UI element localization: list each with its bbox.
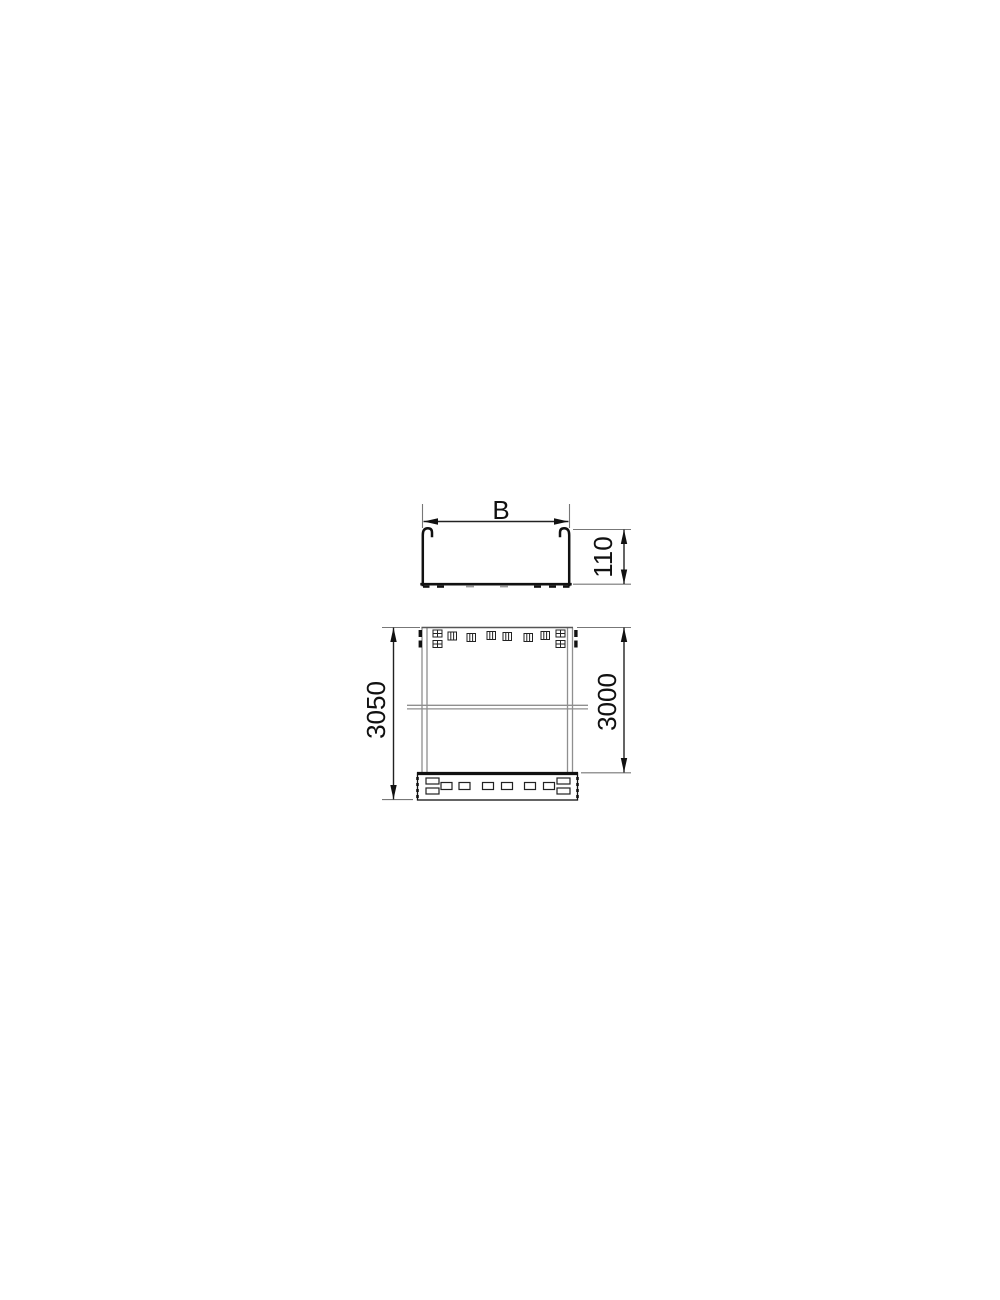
d3050-arrow-bottom bbox=[390, 785, 396, 800]
perforation-stack-right bbox=[556, 630, 565, 648]
technical-drawing-canvas: B 110 3050 3000 bbox=[0, 0, 1000, 1300]
floor-perforations-top-band bbox=[433, 630, 565, 648]
dimension-label-width-b: B bbox=[481, 497, 521, 523]
perforation-slots-row bbox=[448, 632, 550, 642]
perforation-stack-left bbox=[433, 630, 442, 648]
left-wall-curl bbox=[423, 528, 432, 585]
h110-arrow-bottom bbox=[621, 570, 627, 585]
right-wall-curl bbox=[560, 528, 569, 585]
dimension-label-effective-length-3000: 3000 bbox=[594, 662, 620, 742]
dimension-label-overall-length-3050: 3050 bbox=[363, 670, 389, 750]
coupler-band bbox=[416, 773, 579, 800]
plan-view bbox=[407, 628, 588, 801]
b-arrow-left bbox=[424, 518, 439, 524]
d3000-arrow-bottom bbox=[621, 758, 627, 773]
b-arrow-right bbox=[554, 518, 569, 524]
h110-arrow-top bbox=[621, 530, 627, 545]
front-view-cross-section bbox=[422, 528, 571, 588]
drawing-linework bbox=[0, 0, 1000, 1300]
dimension-label-height-110: 110 bbox=[590, 527, 616, 587]
d3000-arrow-top bbox=[621, 628, 627, 643]
d3050-arrow-top bbox=[390, 628, 396, 643]
bottom-feet-ticks bbox=[423, 586, 570, 588]
